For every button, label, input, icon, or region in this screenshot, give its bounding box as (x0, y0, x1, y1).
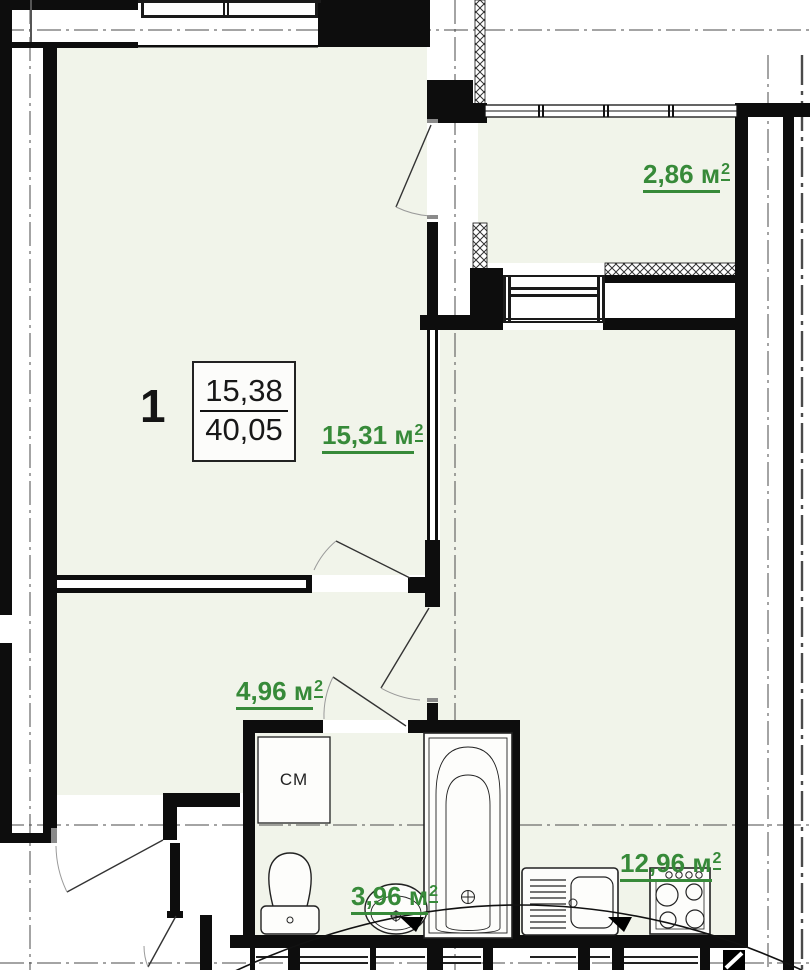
floor-plan-page: 1 15,38 40,05 15,31 м2 2,86 м2 4,96 м2 3… (0, 0, 810, 970)
floor-plan-drawing (0, 0, 810, 970)
balcony-area-label: 2,86 м2 (643, 159, 730, 190)
total-area-value: 40,05 (205, 412, 283, 449)
balcony-block-unit (503, 275, 605, 323)
washing-machine-label: СМ (258, 737, 330, 823)
section-marker (723, 950, 745, 970)
room-fills (57, 47, 737, 935)
living-room-floor (57, 47, 427, 575)
bathroom-area-label: 3,96 м2 (351, 881, 438, 912)
lower-window-lines (256, 956, 698, 964)
living-area-value: 15,38 (200, 374, 288, 412)
neighbour-door-arc (144, 946, 148, 967)
balcony-glazing (485, 105, 737, 117)
neighbour-door-leaf (148, 916, 176, 967)
living-room-area-label: 15,31 м2 (322, 420, 423, 451)
kitchen-sink (522, 868, 618, 935)
apartment-number: 1 (140, 379, 166, 433)
entrance-door-leaf (67, 840, 163, 892)
hallway-area-label: 4,96 м2 (236, 676, 323, 707)
kitchen-area-label: 12,96 м2 (620, 848, 721, 879)
entrance-door-arc (56, 846, 67, 892)
apartment-info-box: 15,38 40,05 (192, 361, 296, 462)
